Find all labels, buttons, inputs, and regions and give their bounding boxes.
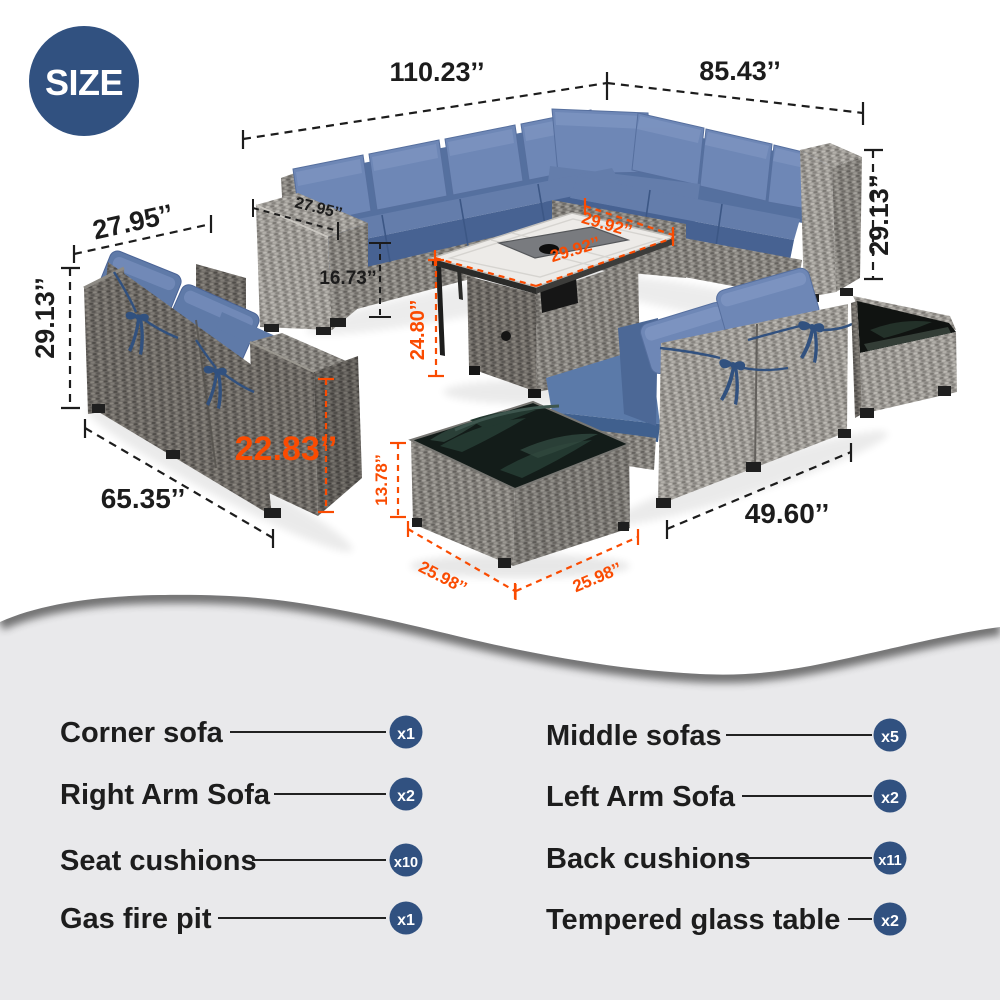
svg-text:x2: x2: [881, 790, 899, 807]
svg-text:SIZE: SIZE: [45, 62, 123, 103]
svg-text:Gas fire pit: Gas fire pit: [60, 903, 212, 935]
svg-text:65.35’’: 65.35’’: [101, 483, 186, 514]
svg-text:13.78’’: 13.78’’: [372, 454, 391, 505]
svg-text:16.73’’: 16.73’’: [319, 268, 376, 289]
svg-text:x5: x5: [881, 729, 899, 746]
svg-text:24.80’’: 24.80’’: [407, 300, 429, 360]
svg-text:110.23’’: 110.23’’: [389, 57, 484, 87]
svg-text:x1: x1: [397, 726, 415, 743]
svg-text:Tempered glass table: Tempered glass table: [546, 904, 840, 936]
svg-text:Right Arm Sofa: Right Arm Sofa: [60, 779, 271, 811]
svg-text:22.83’’: 22.83’’: [235, 430, 338, 468]
svg-text:x2: x2: [881, 913, 899, 930]
svg-text:Back cushions: Back cushions: [546, 843, 751, 875]
svg-text:49.60’’: 49.60’’: [745, 498, 830, 529]
svg-text:Corner sofa: Corner sofa: [60, 717, 224, 749]
svg-text:85.43’’: 85.43’’: [699, 56, 781, 86]
svg-text:29.13’’: 29.13’’: [30, 277, 60, 359]
svg-text:Seat cushions: Seat cushions: [60, 845, 257, 877]
svg-text:29.13’’: 29.13’’: [864, 174, 894, 256]
svg-text:x11: x11: [878, 853, 901, 869]
svg-text:x1: x1: [397, 912, 415, 929]
svg-text:Middle sofas: Middle sofas: [546, 720, 722, 752]
svg-text:Left Arm Sofa: Left Arm Sofa: [546, 781, 736, 813]
svg-text:x10: x10: [394, 855, 418, 871]
svg-text:x2: x2: [397, 788, 415, 805]
